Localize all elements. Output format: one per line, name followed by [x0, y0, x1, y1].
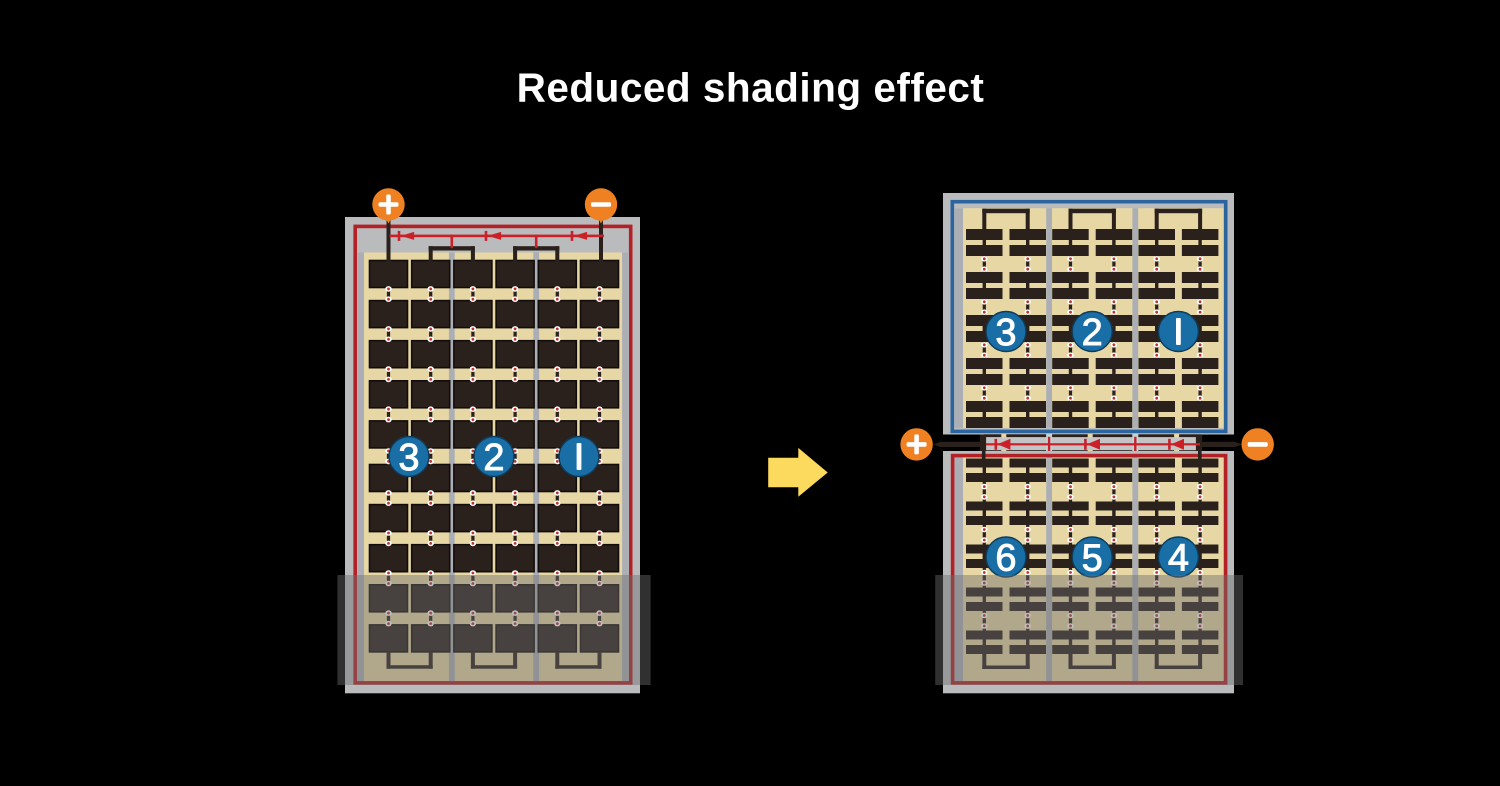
svg-text:3: 3 [995, 312, 1016, 354]
svg-text:2: 2 [483, 437, 504, 479]
svg-text:2: 2 [1082, 312, 1103, 354]
svg-text:Reduced shading effect: Reduced shading effect [517, 65, 985, 111]
svg-text:4: 4 [1168, 537, 1189, 579]
svg-text:5: 5 [1082, 537, 1103, 579]
svg-text:3: 3 [398, 437, 419, 479]
svg-text:6: 6 [995, 537, 1016, 579]
